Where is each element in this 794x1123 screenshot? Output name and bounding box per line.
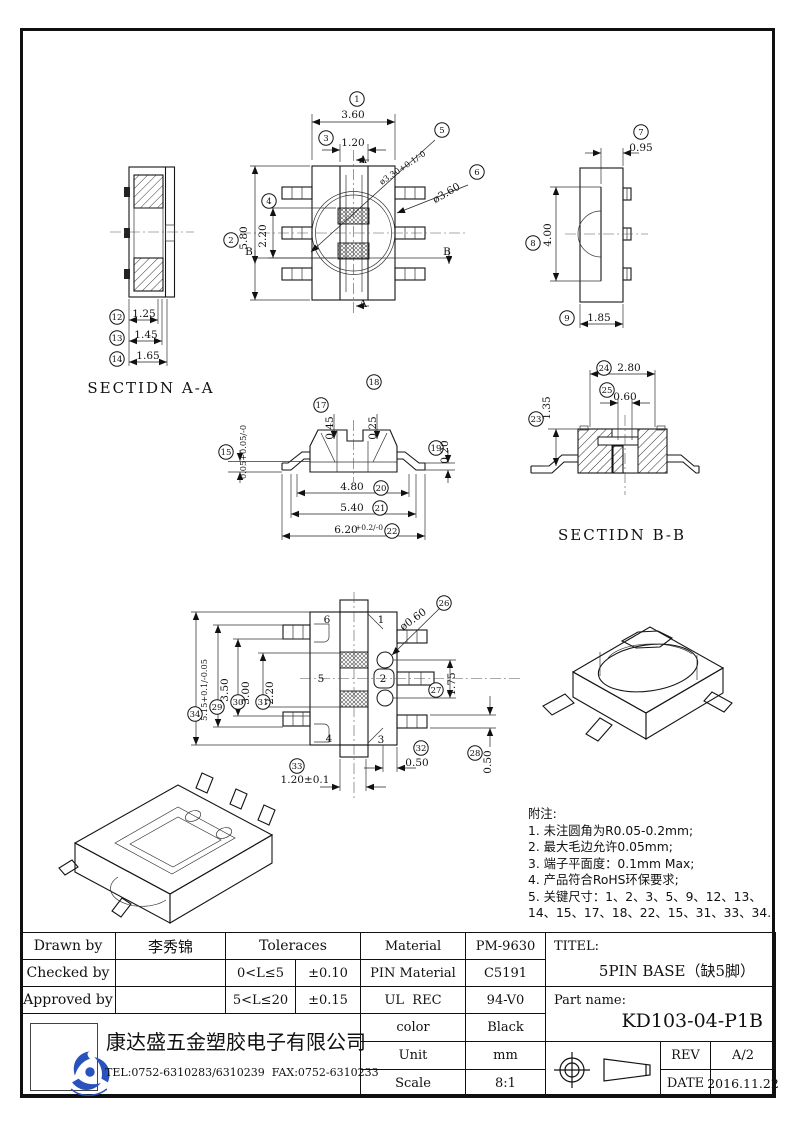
- checked-by-label: Checked by: [20, 959, 116, 987]
- svg-text:3: 3: [323, 134, 328, 144]
- callout-21: 21: [373, 501, 387, 515]
- top-left-leads: [282, 187, 312, 280]
- callout-18: 18: [367, 375, 381, 389]
- dim-text: 1: [378, 614, 385, 626]
- callout-22: 22: [385, 524, 399, 538]
- company-block: 康达盛五金塑胶电子有限公司 TEL:0752-6310283/6310239 F…: [20, 1013, 361, 1098]
- tolerance-value-2: ±0.15: [295, 986, 361, 1014]
- dim-text: 5: [318, 673, 325, 685]
- tolerance-range-1: 0<L≤5: [225, 959, 296, 987]
- svg-text:27: 27: [431, 686, 442, 696]
- note-line: 2. 最大毛边允许0.05mm;: [528, 839, 763, 856]
- dim-text: 2.20: [264, 681, 276, 704]
- drawn-by-label: Drawn by: [20, 932, 116, 960]
- dim-text: 0.45: [324, 416, 336, 439]
- notes-title: 附注:: [528, 806, 763, 823]
- dim-text: 0.50: [405, 757, 428, 769]
- dim-text: 1.20: [341, 137, 364, 149]
- callout-4: 4: [262, 194, 276, 208]
- svg-text:13: 13: [112, 334, 123, 344]
- svg-text:7: 7: [638, 128, 643, 138]
- iso-view-right: [543, 627, 732, 741]
- dim-text: 4.80: [340, 481, 363, 493]
- tolerances-header: Toleraces: [225, 932, 361, 960]
- dim-text: B: [245, 246, 253, 258]
- dim-text: 2.20: [257, 224, 269, 247]
- section-bb-label: SECTIDN B-B: [558, 526, 686, 544]
- rev-value: A/2: [710, 1041, 776, 1070]
- svg-text:29: 29: [212, 703, 223, 713]
- iso-view-bottom-left: [59, 773, 275, 923]
- dim-text: 3: [378, 734, 385, 746]
- svg-text:4: 4: [266, 197, 271, 207]
- company-logo: [30, 1023, 98, 1091]
- dim-text: 1.25: [132, 308, 155, 320]
- dim-text: 3.60: [341, 109, 364, 121]
- dim-text: 3.50: [219, 678, 231, 701]
- callout-26: 26: [437, 596, 451, 610]
- material-label: Material: [360, 932, 466, 960]
- svg-text:14: 14: [112, 355, 123, 365]
- callout-20: 20: [374, 481, 388, 495]
- projection-symbol-cell: [545, 1041, 661, 1098]
- callout-25: 25: [600, 383, 614, 397]
- svg-text:21: 21: [375, 504, 386, 514]
- svg-text:9: 9: [564, 314, 569, 324]
- dim-text: 0.25: [367, 416, 379, 439]
- dim-text: 4: [326, 733, 333, 745]
- callout-12: 12: [110, 310, 124, 324]
- title-cell: TITEL: 5PIN BASE（缺5脚）: [545, 932, 776, 987]
- scale-value: 8:1: [465, 1069, 546, 1098]
- callout-7: 7: [634, 125, 648, 139]
- svg-text:8: 8: [530, 239, 535, 249]
- part-name-cell: Part name: KD103-04-P1B: [545, 986, 776, 1042]
- third-angle-projection-icon: [548, 1045, 658, 1095]
- dim-text: 1.45: [134, 329, 157, 341]
- callout-17: 17: [314, 398, 328, 412]
- top-right-leads: [395, 187, 425, 280]
- side-view-annotations: 70.9584.0091.85: [526, 125, 653, 325]
- drawing-sheet: 121.25131.45141.65SECTIDN A-A: [0, 0, 794, 1123]
- callout-5: 5: [435, 123, 449, 137]
- callout-33: 33: [290, 759, 304, 773]
- svg-text:17: 17: [316, 401, 327, 411]
- view-side: [550, 148, 648, 328]
- dim-text: 2: [380, 673, 387, 685]
- callout-24: 24: [597, 361, 611, 375]
- svg-text:28: 28: [470, 749, 481, 759]
- rev-label: REV: [660, 1041, 711, 1070]
- svg-text:24: 24: [599, 364, 610, 374]
- date-label: DATE: [660, 1069, 711, 1098]
- ul-rec-value: 94-V0: [465, 986, 546, 1014]
- svg-text:22: 22: [387, 527, 398, 537]
- unit-value: mm: [465, 1041, 546, 1070]
- company-name: 康达盛五金塑胶电子有限公司: [105, 1026, 367, 1055]
- dim-text: 5.40: [340, 502, 363, 514]
- svg-text:1: 1: [354, 95, 359, 105]
- dim-text: 0.05+0.05/-0: [238, 425, 248, 479]
- approved-by-label: Approved by: [20, 986, 116, 1014]
- dim-text: 1.35: [541, 396, 553, 419]
- dim-text: 1.75: [446, 672, 458, 695]
- note-line: 3. 端子平面度：0.1mm Max;: [528, 856, 763, 873]
- note-line: 5. 关键尺寸：1、2、3、5、9、12、13、: [528, 889, 763, 906]
- dim-text: 0.95: [629, 142, 652, 154]
- svg-text:23: 23: [531, 415, 542, 425]
- approved-by-value: [115, 986, 226, 1014]
- svg-text:2: 2: [228, 236, 233, 246]
- section-aa-annotations: 121.25131.45141.65SECTIDN A-A: [87, 308, 214, 397]
- dim-text: 1.65: [136, 350, 159, 362]
- scale-label: Scale: [360, 1069, 466, 1098]
- svg-text:6: 6: [474, 168, 479, 178]
- callout-15: 15: [219, 445, 233, 459]
- pin-material-label: PIN Material: [360, 959, 466, 987]
- dim-text: ø3.30+0.1/-0: [377, 148, 427, 186]
- notes-block: 附注: 1. 未注圆角为R0.05-0.2mm; 2. 最大毛边允许0.05mm…: [528, 806, 763, 922]
- callout-9: 9: [560, 311, 574, 325]
- dim-text: 1.20±0.1: [281, 774, 330, 786]
- company-contact: TEL:0752-6310283/6310239 FAX:0752-631023…: [105, 1066, 367, 1079]
- dim-text: 6: [324, 614, 331, 626]
- title-value: 5PIN BASE（缺5脚）: [599, 960, 755, 981]
- view-section-bb: [531, 370, 699, 495]
- pin-material-value: C5191: [465, 959, 546, 987]
- dim-text: 0.60: [613, 391, 636, 403]
- dim-text: 0.50: [482, 750, 494, 773]
- material-value: PM-9630: [465, 932, 546, 960]
- callout-2: 2: [224, 233, 238, 247]
- dim-text: ø0.60: [398, 606, 429, 633]
- callout-14: 14: [110, 352, 124, 366]
- view-front: [228, 414, 455, 540]
- callout-6: 6: [470, 165, 484, 179]
- callout-13: 13: [110, 331, 124, 345]
- svg-text:26: 26: [439, 599, 450, 609]
- color-label: color: [360, 1013, 466, 1042]
- svg-text:15: 15: [221, 448, 232, 458]
- callout-8: 8: [526, 236, 540, 250]
- tolerance-range-2: 5<L≤20: [225, 986, 296, 1014]
- ul-rec-label: UL REC: [360, 986, 466, 1014]
- callout-32: 32: [414, 741, 428, 755]
- drawing-area: 121.25131.45141.65SECTIDN A-A: [0, 0, 794, 932]
- svg-text:25: 25: [602, 386, 613, 396]
- dim-text: +0.2/-0: [355, 523, 383, 532]
- callout-27: 27: [429, 683, 443, 697]
- dim-text: 4.00: [542, 223, 554, 246]
- dim-text: 1.85: [587, 312, 610, 324]
- note-line: 14、15、17、18、22、15、31、33、34.: [528, 905, 763, 922]
- dim-text: ø3.60: [431, 181, 463, 206]
- callout-1: 1: [350, 92, 364, 106]
- svg-text:20: 20: [376, 484, 387, 494]
- svg-text:32: 32: [416, 744, 427, 754]
- dim-text: A: [358, 154, 367, 166]
- note-line: 4. 产品符合RoHS环保要求;: [528, 872, 763, 889]
- bottom-left-leads: [283, 625, 310, 726]
- part-name-label: Part name:: [554, 993, 626, 1008]
- dim-text: 3.00: [240, 681, 252, 704]
- callout-3: 3: [319, 131, 333, 145]
- dim-text: 5.15+0.1/-0.05: [199, 659, 209, 721]
- part-name-value: KD103-04-P1B: [621, 1010, 763, 1032]
- svg-text:12: 12: [112, 313, 123, 323]
- checked-by-value: [115, 959, 226, 987]
- note-line: 1. 未注圆角为R0.05-0.2mm;: [528, 823, 763, 840]
- section-aa-label: SECTIDN A-A: [87, 379, 214, 397]
- svg-text:18: 18: [369, 378, 380, 388]
- dim-text: A: [358, 298, 367, 310]
- svg-text:33: 33: [292, 762, 303, 772]
- callout-28: 28: [468, 746, 482, 760]
- dim-text: B: [443, 246, 451, 258]
- date-value: 2016.11.22: [710, 1069, 776, 1098]
- top-view-annotations: 13.6031.2025.8042.205ø3.30+0.1/-06ø3.60A…: [224, 92, 484, 310]
- dim-text: 2.80: [617, 362, 640, 374]
- color-value: Black: [465, 1013, 546, 1042]
- title-label: TITEL:: [554, 939, 599, 954]
- dim-text: 0.20: [439, 440, 451, 463]
- svg-text:5: 5: [439, 126, 444, 136]
- drawn-by-value: 李秀锦: [115, 932, 226, 960]
- tolerance-value-1: ±0.10: [295, 959, 361, 987]
- unit-label: Unit: [360, 1041, 466, 1070]
